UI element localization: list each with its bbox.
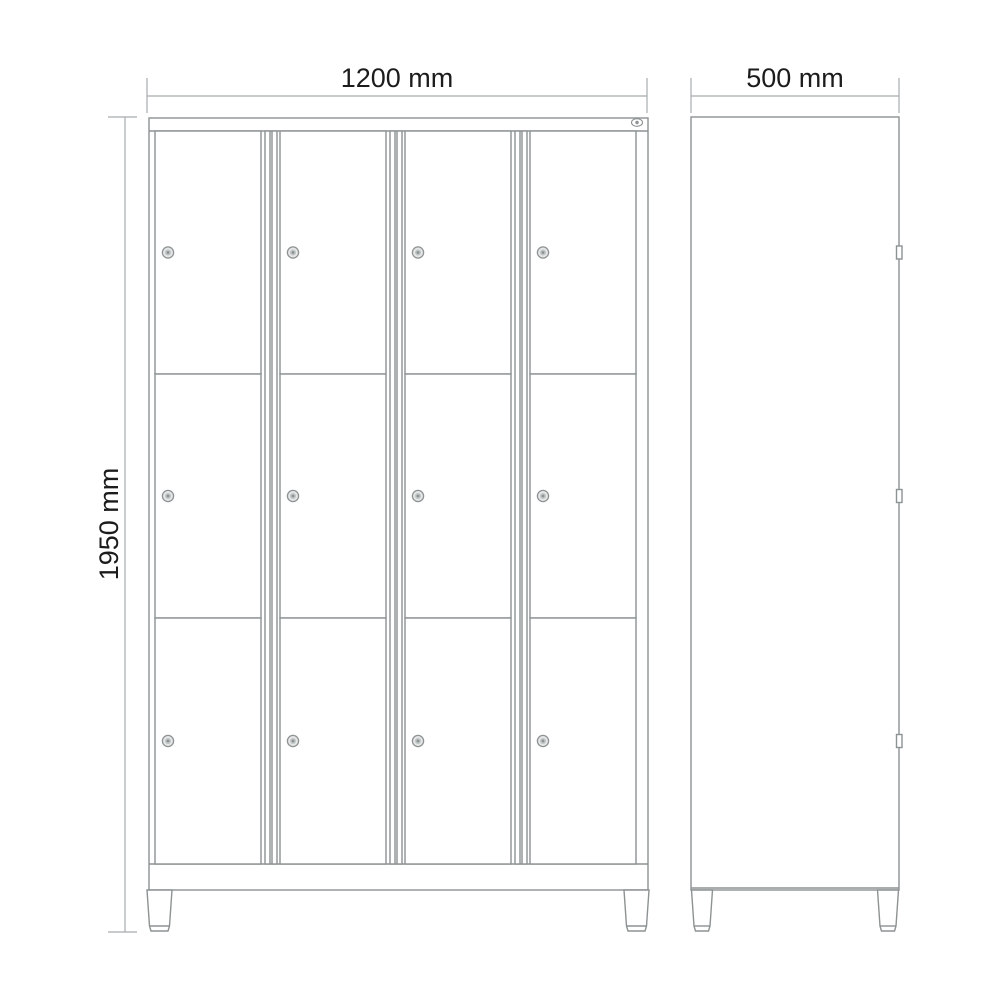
dimension-height: 1950 mm bbox=[94, 117, 137, 932]
lock-icon bbox=[162, 490, 173, 501]
lock-keyhole bbox=[542, 740, 545, 743]
lock-keyhole bbox=[167, 251, 170, 254]
foot-outline bbox=[878, 890, 899, 931]
lock-keyhole bbox=[417, 495, 420, 498]
dimension-height-label: 1950 mm bbox=[94, 468, 124, 581]
foot-outline bbox=[692, 890, 713, 931]
cabinet-foot bbox=[878, 890, 899, 931]
cabinet-foot bbox=[624, 890, 649, 931]
cabinet-foot bbox=[692, 890, 713, 931]
lock-keyhole bbox=[167, 495, 170, 498]
dimension-width: 1200 mm bbox=[147, 63, 647, 113]
lock-keyhole bbox=[417, 740, 420, 743]
divider-post bbox=[522, 131, 527, 864]
front-feet bbox=[147, 890, 649, 931]
foot-outline bbox=[624, 890, 649, 931]
dimension-depth-label: 500 mm bbox=[746, 63, 844, 93]
divider-post bbox=[390, 131, 395, 864]
side-feet bbox=[692, 890, 899, 931]
lock-icon bbox=[412, 735, 423, 746]
lock-icon bbox=[162, 735, 173, 746]
latch-mark bbox=[897, 735, 903, 748]
lock-icon bbox=[162, 247, 173, 258]
lock-icon bbox=[537, 735, 548, 746]
lock-keyhole bbox=[542, 495, 545, 498]
divider-post bbox=[272, 131, 277, 864]
badge-core bbox=[635, 121, 638, 124]
divider-post bbox=[515, 131, 520, 864]
front-view bbox=[147, 118, 649, 931]
lock-icon bbox=[287, 490, 298, 501]
lock-keyhole bbox=[167, 740, 170, 743]
side-view bbox=[691, 117, 902, 931]
lock-keyhole bbox=[292, 740, 295, 743]
dimension-depth: 500 mm bbox=[691, 63, 899, 113]
cabinet-foot bbox=[147, 890, 172, 931]
lock-icon bbox=[412, 247, 423, 258]
latch-mark bbox=[897, 490, 903, 503]
lock-keyhole bbox=[542, 251, 545, 254]
lock-keyhole bbox=[417, 251, 420, 254]
foot-outline bbox=[147, 890, 172, 931]
lock-keyhole bbox=[292, 251, 295, 254]
brand-badge-icon bbox=[632, 119, 643, 127]
lock-keyhole bbox=[292, 495, 295, 498]
lock-icon bbox=[412, 490, 423, 501]
lock-icon bbox=[537, 490, 548, 501]
lock-icon bbox=[537, 247, 548, 258]
drawing-canvas: 1200 mm 500 mm 1950 mm bbox=[0, 0, 1000, 1000]
locker-technical-drawing: 1200 mm 500 mm 1950 mm bbox=[0, 0, 1000, 1000]
side-body-outline bbox=[691, 117, 899, 890]
divider-post bbox=[265, 131, 270, 864]
latch-mark bbox=[897, 246, 903, 259]
lock-icon bbox=[287, 247, 298, 258]
dimension-width-label: 1200 mm bbox=[341, 63, 454, 93]
lock-icon bbox=[287, 735, 298, 746]
divider-post bbox=[397, 131, 402, 864]
